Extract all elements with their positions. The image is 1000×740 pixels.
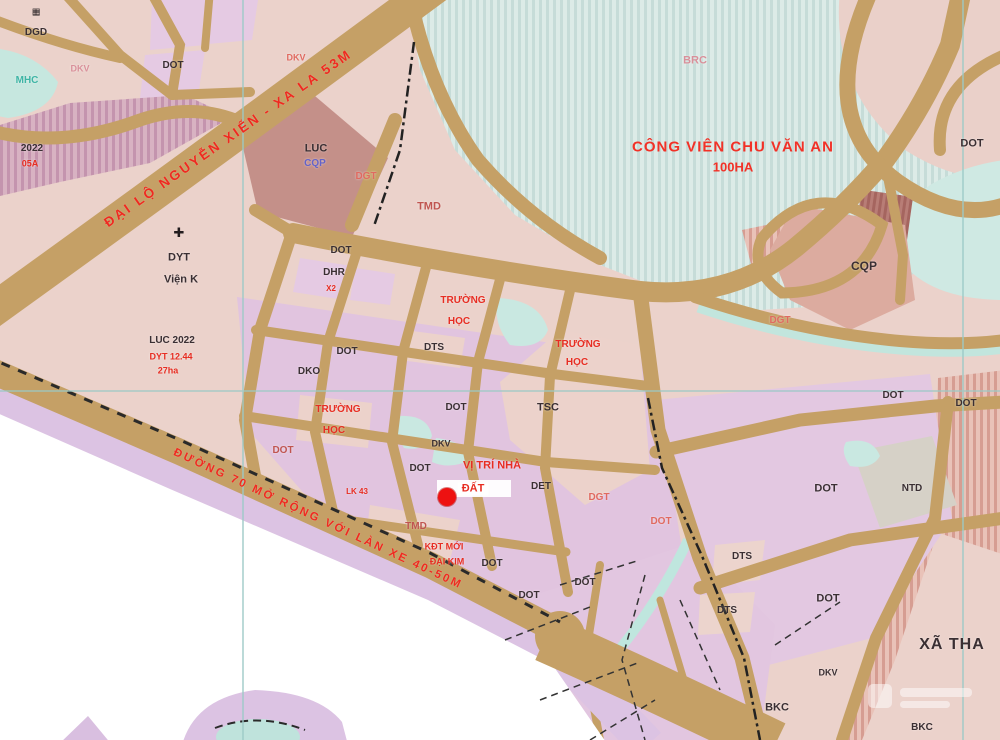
zone-label-dot: DOT xyxy=(445,403,466,413)
watermark-text-bar xyxy=(900,701,950,708)
watermark-logo xyxy=(868,684,892,708)
zone-label-dts: DTS xyxy=(717,606,737,616)
zone-label-dot: DOT xyxy=(882,391,903,401)
zone-label-tmd: TMD xyxy=(405,522,427,532)
zone-label-dkv: DKV xyxy=(431,440,450,449)
zone-label-mhc: MHC xyxy=(16,76,39,86)
zone-label-det: DET xyxy=(531,482,551,492)
zone-label-bkc: BKC xyxy=(911,723,933,733)
zone-label-05a: 05A xyxy=(22,160,39,169)
zone-label-x2: X2 xyxy=(326,285,336,293)
marker-caption-line1: VỊ TRÍ NHÀ xyxy=(463,461,521,472)
zone-label-dot: DOT xyxy=(336,347,357,357)
zone-label-dot: DOT xyxy=(409,464,430,474)
zone-label-dot: DOT xyxy=(272,446,293,456)
zone-label-2022: 2022 xyxy=(21,144,43,154)
school-label-2a: TRƯỜNG xyxy=(315,405,360,415)
zone-label-27ha: 27ha xyxy=(158,367,179,376)
zone-label-dkv: DKV xyxy=(818,669,837,678)
watermark xyxy=(862,676,992,728)
zone-label-dot: DOT xyxy=(330,246,351,256)
zone-label-dot: DOT xyxy=(816,594,839,605)
zone-label-dgt: DGT xyxy=(355,172,376,182)
school-icon: ▦ xyxy=(32,7,41,18)
zone-label-dot: DOT xyxy=(955,399,976,409)
school-label-3a: TRƯỜNG xyxy=(555,340,600,350)
zone-label-dai-kim: ĐẠI KIM xyxy=(430,558,465,567)
zone-label-dot: DOT xyxy=(960,139,983,150)
zone-label-dyt-area: DYT 12.44 xyxy=(149,353,192,362)
school-label-1b: HỌC xyxy=(448,317,470,327)
school-label-3b: HỌC xyxy=(566,358,588,368)
school-label-1a: TRƯỜNG xyxy=(440,296,485,306)
zone-label-dot: DOT xyxy=(481,559,502,569)
zone-label-cqp: CQP xyxy=(851,260,877,272)
zone-label-kdt-moi: KĐT MỚI xyxy=(425,543,464,552)
planning-map[interactable]: ĐẠI LỘ NGUYỄN XIỂN - XA LA 53M ĐƯỜNG 70 … xyxy=(0,0,1000,740)
zone-label-tsc: TSC xyxy=(537,403,559,414)
map-canvas xyxy=(0,0,1000,740)
commune-label-xa-tha: XÃ THA xyxy=(919,637,985,653)
zone-label-dts: DTS xyxy=(424,343,444,353)
zone-label-dhr: DHR xyxy=(323,268,345,278)
park-area-label: 100HA xyxy=(713,160,753,175)
zone-label-bkc: BKC xyxy=(765,703,789,714)
zone-label-dot: DOT xyxy=(162,61,183,71)
zone-label-dgt: DGT xyxy=(769,316,790,326)
school-label-2b: HỌC xyxy=(323,426,345,436)
zone-label-dot: DOT xyxy=(814,484,837,495)
zone-label-ntd: NTD xyxy=(902,484,923,494)
marker-caption-line2: ĐẤT xyxy=(458,483,489,496)
zone-label-dts: DTS xyxy=(732,552,752,562)
zone-label-dot: DOT xyxy=(574,578,595,588)
zone-label-dyt: DYT xyxy=(168,253,190,264)
zone-label-dkv: DKV xyxy=(70,65,89,74)
zone-label-luc: LUC xyxy=(305,144,328,155)
hospital-icon: ✚ xyxy=(174,225,185,241)
park-title: CÔNG VIÊN CHU VĂN AN xyxy=(632,139,834,156)
zone-label-cqp: CQP xyxy=(304,159,326,169)
zone-label-lk43: LK 43 xyxy=(346,488,368,496)
location-marker xyxy=(438,488,456,506)
zone-label-dot: DOT xyxy=(518,591,539,601)
watermark-text-bar xyxy=(900,688,972,697)
zone-label-dgt: DGT xyxy=(588,493,609,503)
zone-label-dkv: DKV xyxy=(286,54,305,63)
zone-label-luc-2022: LUC 2022 xyxy=(149,336,195,346)
zone-label-vien-k: Viện K xyxy=(164,275,198,286)
zone-label-dko: DKO xyxy=(298,367,320,377)
zone-label-tmd: TMD xyxy=(417,202,441,213)
zone-label-dgd: DGD xyxy=(25,28,47,38)
zone-label-dot: DOT xyxy=(650,517,671,527)
zone-label-brc: BRC xyxy=(683,56,707,67)
